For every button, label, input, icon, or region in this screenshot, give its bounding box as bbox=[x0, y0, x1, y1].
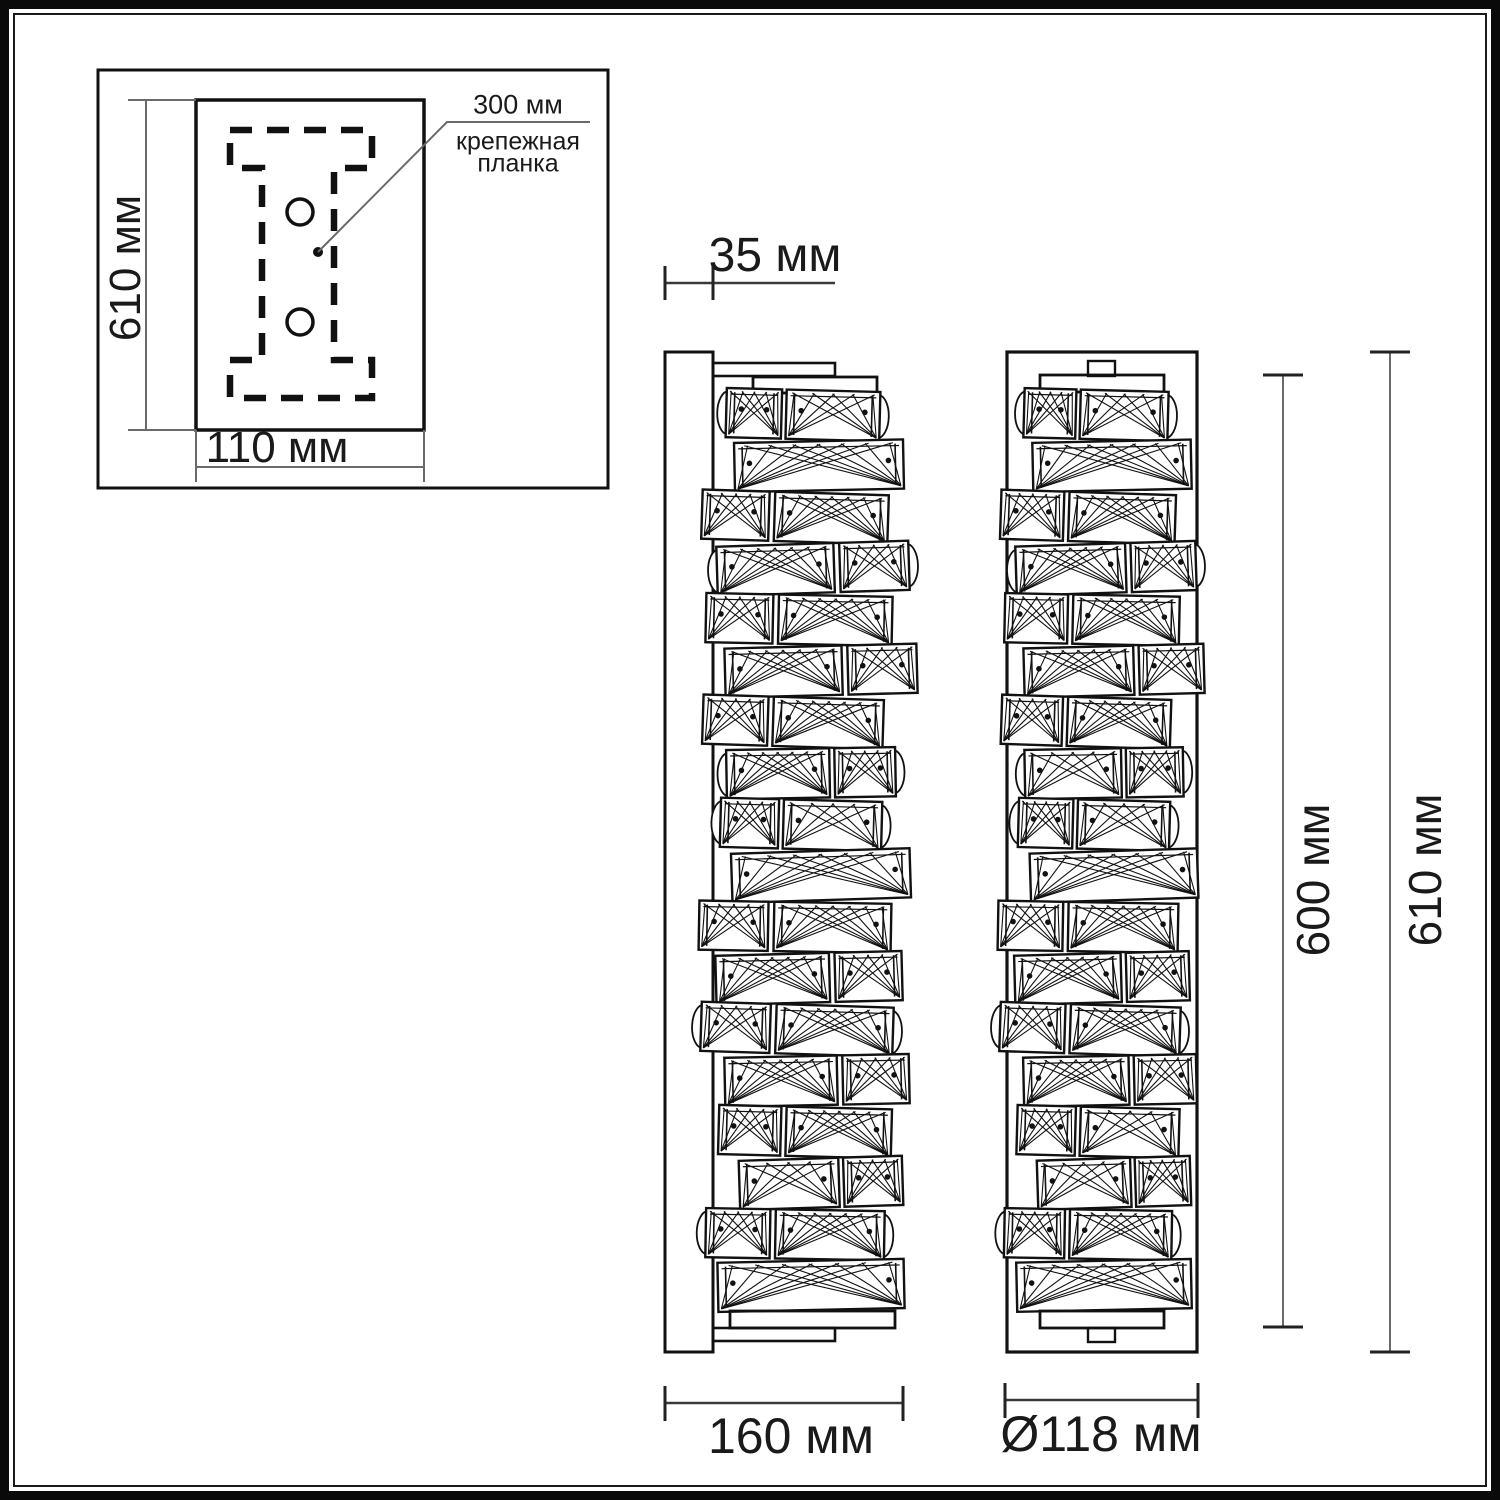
bottom-arm-side bbox=[713, 1328, 835, 1341]
bottom-canopy-front bbox=[1040, 1311, 1164, 1328]
bottom-tab-front bbox=[1088, 1328, 1115, 1342]
total-height-label: 610 мм bbox=[1402, 794, 1448, 947]
callout-name-line2: планка bbox=[477, 152, 558, 177]
technical-drawing-sheet: 610 мм 110 мм 300 мм крепежная планка 35… bbox=[0, 0, 1500, 1500]
depth-label: 35 мм bbox=[709, 232, 842, 280]
screw-hole-bottom bbox=[287, 309, 313, 335]
crystal-stack-front bbox=[990, 388, 1205, 1312]
bottom-canopy-side bbox=[730, 1311, 895, 1328]
callout-dimension-label: 300 мм bbox=[473, 92, 563, 119]
screw-hole-top bbox=[287, 199, 313, 225]
front-view bbox=[990, 352, 1410, 1418]
top-arm-side bbox=[713, 363, 835, 376]
diameter-label: Ø118 мм bbox=[1000, 1409, 1201, 1459]
crystal-stack-side bbox=[691, 388, 918, 1312]
drawing-linework bbox=[0, 0, 1500, 1500]
inset-width-label: 110 мм bbox=[206, 426, 349, 470]
mounting-bracket-dashed-outline bbox=[230, 130, 372, 398]
inset-height-label: 610 мм bbox=[104, 195, 148, 341]
width-label: 160 мм bbox=[708, 1411, 874, 1461]
lamp-height-label: 600 мм bbox=[1290, 804, 1336, 957]
side-view bbox=[665, 266, 919, 1421]
